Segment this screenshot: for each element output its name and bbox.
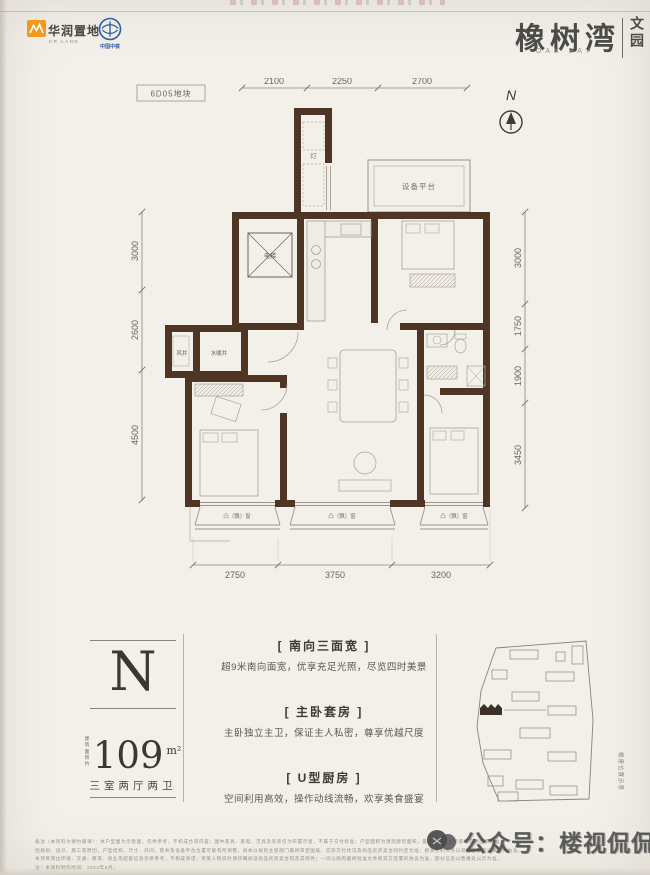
dim-top-2: 2250: [332, 78, 352, 86]
equipment-platform: 设备平台: [368, 160, 470, 212]
block-label-text: 6D05地块: [150, 89, 191, 99]
page-top-line: [0, 11, 650, 12]
dim-right-4: 3450: [513, 445, 523, 465]
dim-bottom-3: 3200: [431, 570, 451, 580]
siteplan-map: 楼座位置示意: [468, 634, 628, 806]
bedroom-north: [402, 221, 455, 287]
bay-window-label-1: 凸（飘）窗: [223, 512, 251, 520]
feature-3-desc: 空间利用高效，操作动线流畅，欢享美食盛宴: [202, 791, 446, 805]
crec-logo-name: 中国中铁: [93, 43, 127, 50]
area-prefix-1: 建筑: [85, 736, 90, 748]
feature-1-title: [ 南向三面宽 ]: [202, 637, 446, 654]
area-prefix-2: 面积约: [85, 749, 90, 767]
living-dining: [328, 350, 408, 491]
bay-window-label-3: 凸（飘）窗: [440, 512, 468, 520]
dim-top-1: 2100: [264, 78, 284, 86]
dim-bottom-1: 2750: [225, 570, 245, 580]
page-edge-left: [0, 0, 7, 875]
area-unit: m²: [166, 744, 181, 773]
siteplan-caption: 楼座位置示意: [617, 752, 625, 791]
layout-text: 三室两厅两卫: [88, 778, 178, 793]
elevator-label: 电梯: [264, 252, 276, 260]
dim-right-3: 1900: [513, 366, 523, 386]
elevator: 电梯: [248, 233, 292, 277]
crland-logo-sub: CR LAND: [42, 39, 86, 44]
north-label: N: [506, 87, 517, 103]
area-block: 建筑 面积约 109 m²: [86, 736, 180, 773]
north-arrow-icon: N: [500, 87, 522, 133]
dim-right-1: 3000: [513, 248, 523, 268]
dims-top: 2100 2250 2700: [239, 78, 470, 91]
cropped-top-text: [230, 0, 445, 5]
unit-letter: N: [90, 642, 176, 702]
divider-left: [183, 634, 184, 802]
dims-left: 3000 2600 4500: [130, 209, 145, 503]
dim-left-2: 2600: [130, 320, 140, 340]
project-title-en: OAK BAY: [515, 48, 615, 55]
area-value: 109: [93, 739, 164, 773]
floorplan: 6D05地块 N 2100 2250 2700 3000: [115, 78, 535, 598]
bedroom-master: [430, 428, 478, 494]
walls: [165, 108, 490, 507]
siteplan-highlight: [480, 704, 502, 715]
project-subtitle: 文园: [627, 16, 647, 62]
dims-bottom: 2750 3750 3200: [190, 510, 493, 580]
closet-label: 灯: [310, 151, 317, 160]
title-divider: [622, 18, 623, 58]
dims-right: 3000 1750 1900 3450: [513, 209, 528, 511]
area-prefix: 建筑 面积约: [85, 736, 90, 773]
rule-bottom: [90, 797, 176, 798]
block-label: 6D05地块: [137, 85, 205, 101]
kitchen: [307, 221, 371, 321]
dim-left-3: 4500: [130, 425, 140, 445]
rule-mid: [90, 708, 176, 709]
feature-3-title: [ U型厨房 ]: [202, 769, 446, 786]
watermark-text: 公众号：楼视侃侃: [463, 824, 650, 858]
feature-1-desc: 超9米南向面宽，优享充足光照，尽览四时美景: [202, 659, 446, 673]
dim-right-2: 1750: [513, 316, 523, 336]
bay-windows: 凸（飘）窗 凸（飘）窗 凸（飘）窗: [190, 503, 488, 542]
crland-logo-name: 华润置地: [48, 22, 100, 39]
disclaimer-line-4: 注：本资料制作时间：2023年6月。: [35, 864, 620, 873]
watermark-logo-icon: [425, 826, 459, 856]
equipment-platform-label: 设备平台: [402, 181, 436, 191]
dim-left-1: 3000: [130, 241, 140, 261]
shafts: 风井 水暖井: [173, 336, 228, 366]
bedroom-west: [195, 384, 258, 496]
watermark: 公众号：楼视侃侃: [425, 824, 650, 858]
dim-top-3: 2700: [412, 78, 432, 86]
bathrooms: [427, 334, 485, 386]
feature-2-title: [ 主卧套房 ]: [202, 703, 446, 720]
dim-bottom-2: 3750: [325, 570, 345, 580]
wind-shaft-label: 风井: [176, 349, 188, 357]
plumbing-shaft-label: 水暖井: [211, 349, 228, 357]
flyer-page: 华润置地 CR LAND 中国中铁 橡树湾 OAK BAY 文园 6D05地块 …: [0, 0, 650, 875]
bay-window-label-2: 凸（飘）窗: [328, 512, 356, 520]
feature-2-desc: 主卧独立主卫，保证主人私密，尊享优越尺度: [202, 725, 446, 739]
